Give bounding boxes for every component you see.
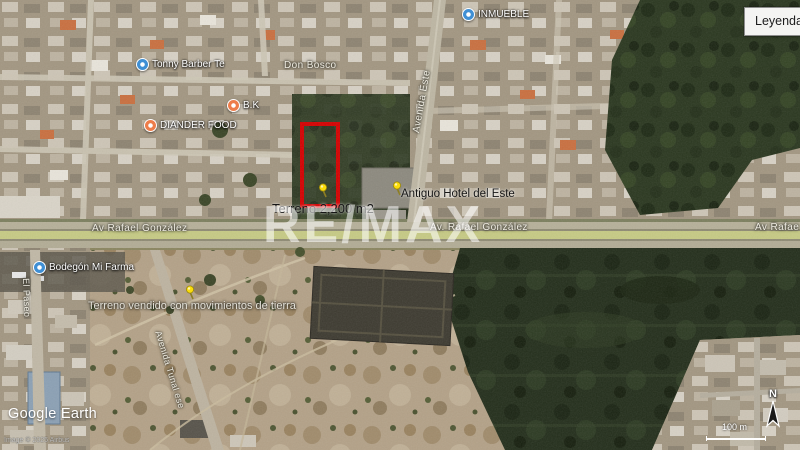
- poi-label: Bodegón Mi Farma: [49, 262, 134, 273]
- scale-label: 100 m: [722, 423, 747, 432]
- restaurant-icon: [227, 99, 240, 112]
- legend-box: Leyenda: [744, 7, 800, 36]
- poi-bodegon-mi-farma: Bodegón Mi Farma: [33, 261, 134, 274]
- poi-label: DIANDER FOOD: [160, 120, 237, 131]
- google-earth-logo: Google Earth: [8, 407, 97, 422]
- imagery-copyright: Image © 2025 Airbus: [4, 437, 69, 444]
- street-label-don-bosco: Don Bosco: [284, 61, 337, 71]
- satellite-map-view: Don Bosco Avenida Este Av Rafael Gonzále…: [0, 0, 800, 450]
- street-label-av-rafael-left: Av Rafael González: [92, 224, 187, 234]
- remax-watermark: RE/MAX: [263, 199, 483, 251]
- scale-bar: [706, 436, 766, 441]
- place-icon: [33, 261, 46, 274]
- poi-label: INMUEBLE: [478, 9, 529, 20]
- annotation-sold-land: Terreno vendido con movimientos de tierr…: [88, 301, 296, 312]
- compass-north-label: N: [769, 389, 777, 400]
- restaurant-icon: [144, 119, 157, 132]
- poi-tonny-barber: Tonny Barber Te: [136, 58, 225, 71]
- poi-label: Tonny Barber Te: [152, 59, 225, 70]
- street-label-el-paseo: El Paseo: [21, 278, 31, 318]
- place-icon: [462, 8, 475, 21]
- poi-bk: B.K: [227, 99, 259, 112]
- street-label-av-rafael-right: Av Rafae: [755, 223, 799, 233]
- poi-label: B.K: [243, 100, 259, 111]
- poi-inmueble: INMUEBLE: [462, 8, 529, 21]
- poi-diander-food: DIANDER FOOD: [144, 119, 237, 132]
- place-icon: [136, 58, 149, 71]
- legend-title: Leyenda: [755, 14, 800, 28]
- compass-arrow-icon: [764, 400, 782, 428]
